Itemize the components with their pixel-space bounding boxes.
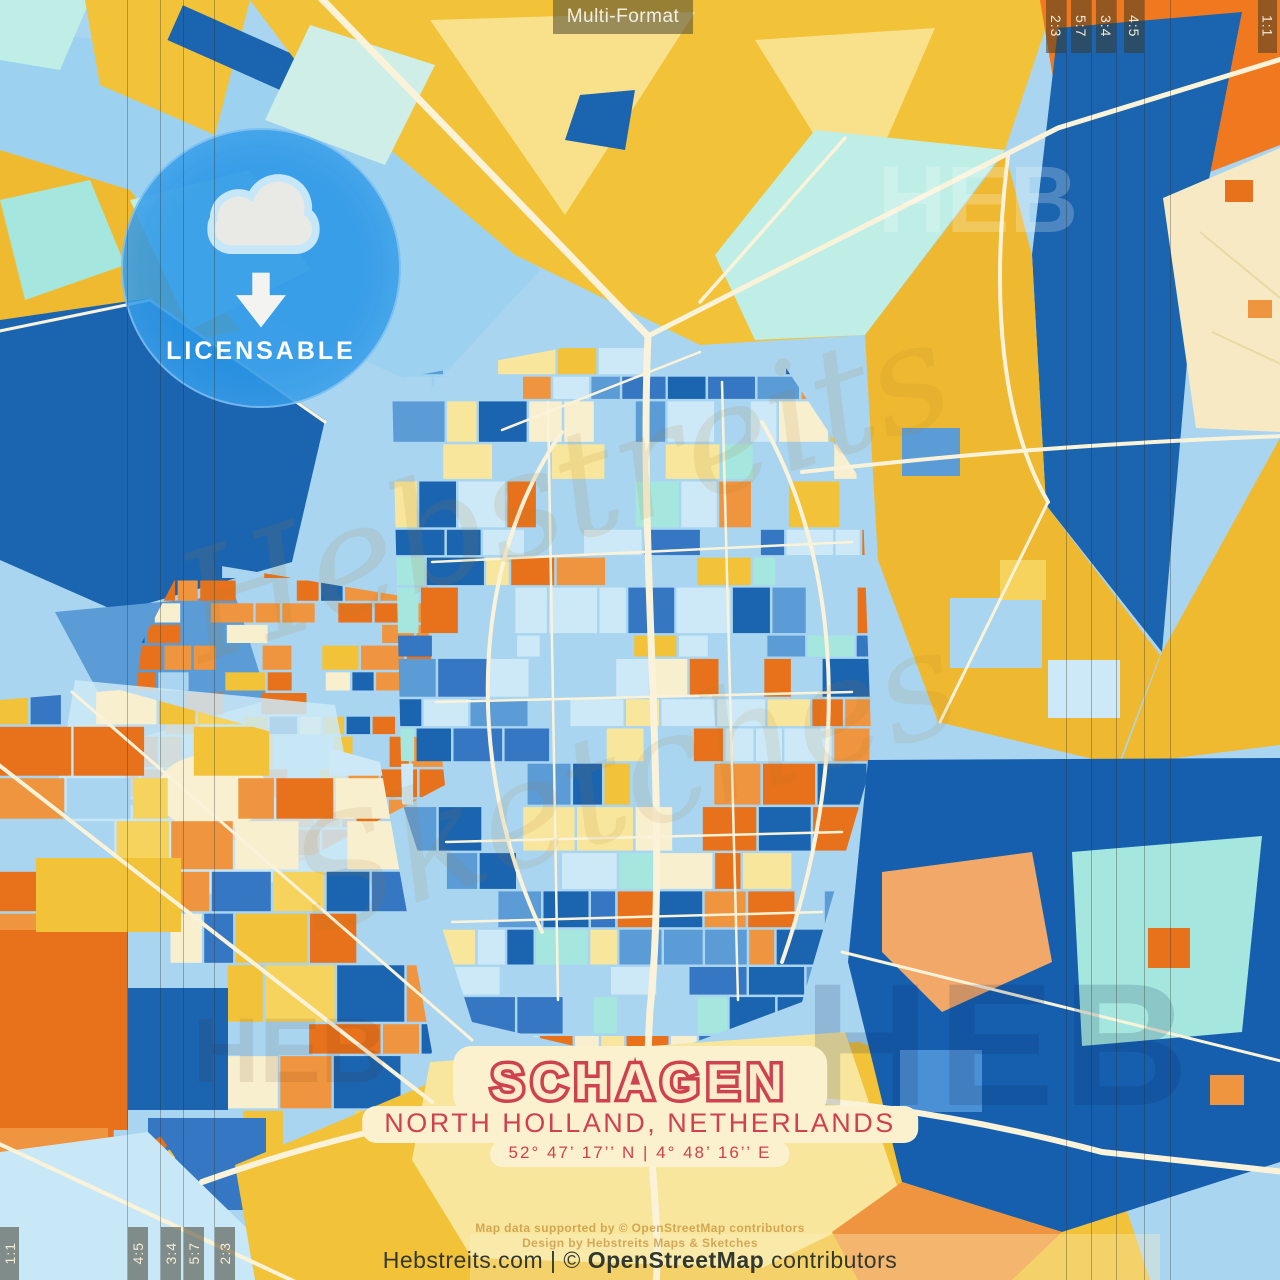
watermark-heb-light: HEB [878, 147, 1079, 253]
ratio-marker-4-5-bottom: 4:5 [128, 1227, 148, 1280]
footer-prefix: Hebstreits.com | © [383, 1247, 588, 1273]
aspect-guide-line [127, 0, 128, 1280]
watermark-heb-faint: HEB [193, 1000, 387, 1102]
ratio-marker-4-5-top: 4:5 [1124, 0, 1144, 53]
aspect-guide-line [1170, 0, 1171, 1280]
ratio-marker-2-3-top: 2:3 [1046, 0, 1066, 53]
ratio-marker-3-4-bottom: 3:4 [161, 1227, 181, 1280]
svg-text:SCHAGEN: SCHAGEN [490, 1054, 789, 1110]
poster-canvas: HEB HEB HEB Hebstreits Sketches Multi-Fo… [0, 0, 1280, 1280]
aspect-guide-line [1091, 0, 1092, 1280]
ratio-marker-2-3-bottom: 2:3 [215, 1227, 235, 1280]
download-arrow-icon [236, 273, 286, 328]
aspect-guide-line [1116, 0, 1117, 1280]
map-coordinates: 52° 47’ 17’’ N | 4° 48’ 16’’ E [509, 1143, 772, 1163]
aspect-guide-line [214, 0, 215, 1280]
ratio-marker-1-1-top: 1:1 [1258, 0, 1277, 53]
ratio-marker-5-7-top: 5:7 [1071, 0, 1091, 53]
footer-brand[interactable]: OpenStreetMap [588, 1247, 764, 1273]
footer-suffix: contributors [764, 1247, 897, 1273]
map-subtitle: NORTH HOLLAND, NETHERLANDS [384, 1108, 896, 1139]
multi-format-label: Multi-Format [553, 0, 693, 34]
cloud-download-icon [186, 148, 336, 335]
aspect-guide-line [183, 0, 184, 1280]
licensable-badge[interactable]: LICENSABLE [121, 128, 401, 408]
aspect-guide-line [160, 0, 161, 1280]
ratio-marker-5-7-bottom: 5:7 [184, 1227, 204, 1280]
aspect-guide-line [1066, 0, 1067, 1280]
aspect-guide-line [1144, 0, 1145, 1280]
map-title: SCHAGEN [475, 1050, 805, 1114]
badge-label: LICENSABLE [166, 337, 356, 366]
ratio-marker-3-4-top: 3:4 [1096, 0, 1116, 53]
ratio-marker-1-1-bottom: 1:1 [0, 1227, 19, 1280]
title-card: SCHAGEN NORTH HOLLAND, NETHERLANDS 52° 4… [362, 1046, 918, 1167]
